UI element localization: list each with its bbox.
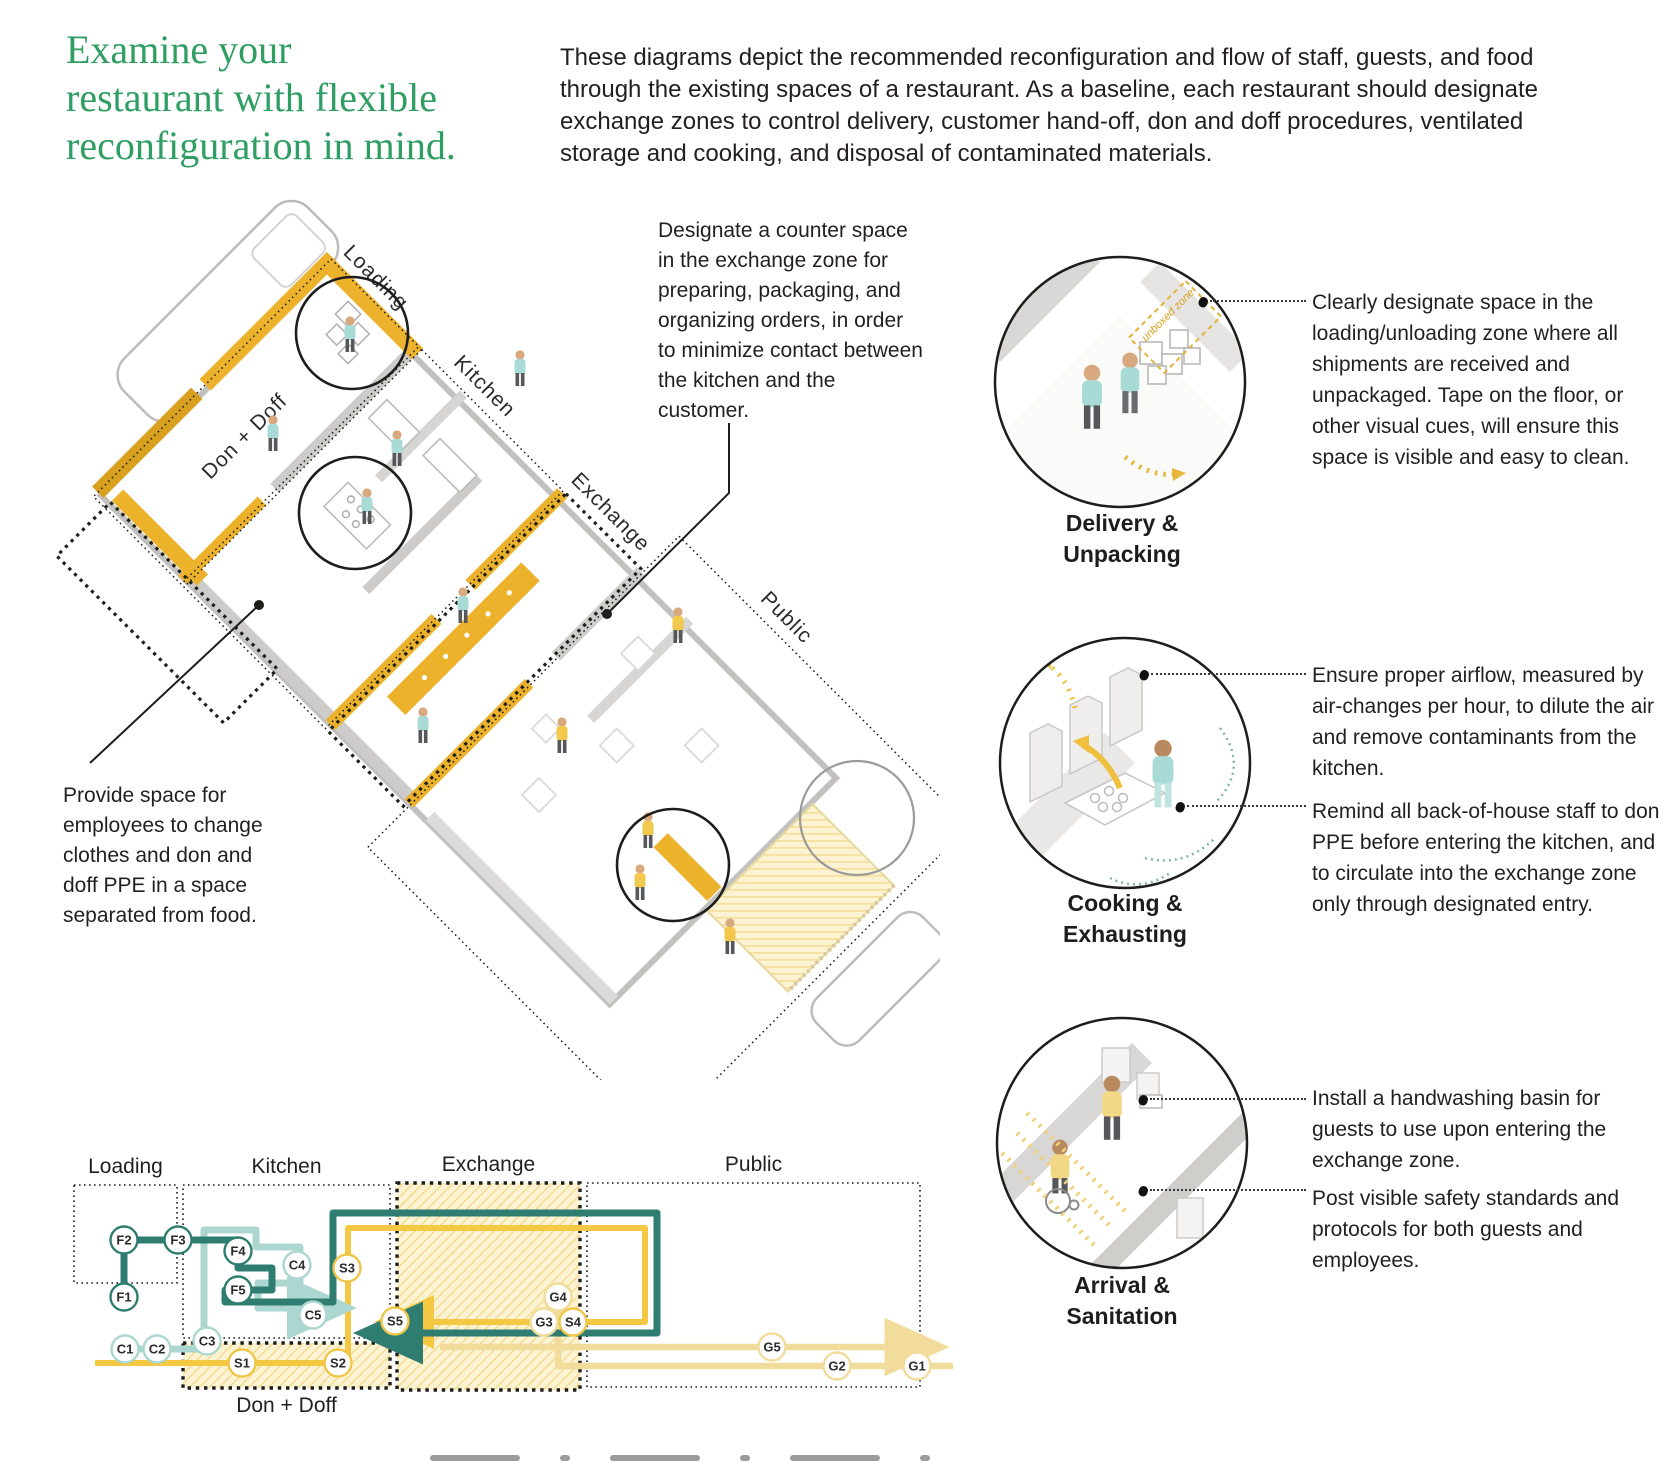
flow-node-S1: S1: [229, 1350, 256, 1377]
leader-line: [1151, 673, 1306, 675]
leader-line: [1187, 805, 1306, 807]
leader-dot: [1199, 297, 1208, 306]
ppe-callout-dot: [254, 600, 264, 610]
flow-node-G4: G4: [545, 1284, 572, 1311]
title-line-2: restaurant with flexible: [66, 74, 566, 122]
flow-zone-label-public: Public: [725, 1153, 782, 1176]
flow-node-F1: F1: [111, 1284, 138, 1311]
svg-text:F2: F2: [116, 1233, 131, 1248]
flow-zone-label-kitchen: Kitchen: [251, 1155, 321, 1178]
svg-text:C2: C2: [149, 1342, 166, 1357]
svg-text:S3: S3: [339, 1261, 355, 1276]
svg-text:G4: G4: [549, 1290, 567, 1305]
flow-node-C3: C3: [194, 1328, 221, 1355]
counter-callout-dot: [602, 609, 612, 619]
svg-text:C1: C1: [117, 1342, 134, 1357]
svg-text:S4: S4: [565, 1315, 582, 1330]
svg-text:F1: F1: [116, 1290, 131, 1305]
axon-label-public: Public: [756, 587, 817, 648]
flow-node-G1: G1: [904, 1353, 931, 1380]
leader-line: [1150, 1098, 1306, 1100]
flow-node-S3: S3: [334, 1255, 361, 1282]
svg-text:F3: F3: [170, 1233, 185, 1248]
flow-node-S5: S5: [382, 1308, 409, 1335]
flow-node-G3: G3: [531, 1309, 558, 1336]
flow-node-S4: S4: [560, 1309, 587, 1336]
title-line-3: reconfiguration in mind.: [66, 122, 566, 170]
cropped-legend-mark: [790, 1455, 880, 1461]
flow-node-S2: S2: [325, 1350, 352, 1377]
cropped-legend-mark: [610, 1455, 700, 1461]
vignette-title-arrival: Arrival & Sanitation: [992, 1270, 1252, 1332]
vignette-title-delivery: Delivery & Unpacking: [992, 508, 1252, 570]
svg-text:S2: S2: [330, 1356, 346, 1371]
svg-text:C3: C3: [199, 1334, 216, 1349]
flow-node-G2: G2: [824, 1353, 851, 1380]
cropped-legend-mark: [560, 1455, 570, 1461]
flow-zone-label-loading: Loading: [88, 1155, 163, 1178]
svg-text:S1: S1: [234, 1356, 250, 1371]
flow-diagram: LoadingKitchenPublicExchangeDon + Doff F…: [40, 1140, 980, 1440]
cropped-legend-mark: [430, 1455, 520, 1461]
flow-node-F2: F2: [111, 1227, 138, 1254]
svg-text:F4: F4: [230, 1244, 246, 1259]
vignette-cooking-exhausting: [980, 618, 1270, 908]
flow-node-C2: C2: [144, 1336, 171, 1363]
title-line-1: Examine your: [66, 26, 566, 74]
flow-zone-label-dondoff: Don + Doff: [236, 1394, 337, 1417]
svg-text:C5: C5: [305, 1308, 322, 1323]
leader-dot: [1140, 670, 1149, 679]
annotation-standards: Post visible safety standards and protoc…: [1312, 1183, 1668, 1276]
svg-text:G2: G2: [828, 1359, 845, 1374]
counter-callout-note: Designate a counter space in the exchang…: [658, 216, 926, 426]
svg-text:G3: G3: [535, 1315, 552, 1330]
flow-node-F3: F3: [165, 1227, 192, 1254]
svg-text:G5: G5: [763, 1340, 780, 1355]
cropped-legend-mark: [740, 1455, 750, 1461]
ppe-callout-note: Provide space for employees to change cl…: [63, 781, 281, 931]
person-figure-yellow: [725, 918, 736, 954]
page-title: Examine your restaurant with flexible re…: [66, 26, 566, 170]
leader-line: [1210, 300, 1306, 302]
leader-dot: [1139, 1186, 1148, 1195]
intro-paragraph: These diagrams depict the recommended re…: [560, 42, 1570, 170]
vignette-arrival-sanitation: [977, 998, 1267, 1288]
annotation-airflow: Ensure proper airflow, measured by air-c…: [1312, 660, 1668, 784]
leader-line: [1150, 1189, 1306, 1191]
flow-node-C4: C4: [284, 1252, 311, 1279]
svg-text:G1: G1: [908, 1359, 925, 1374]
person-figure-teal: [515, 350, 526, 386]
flow-node-C5: C5: [300, 1302, 327, 1329]
annotation-delivery: Clearly designate space in the loading/u…: [1312, 287, 1668, 473]
flow-node-G5: G5: [759, 1334, 786, 1361]
leader-dot: [1139, 1095, 1148, 1104]
svg-text:F5: F5: [230, 1283, 245, 1298]
annotation-handwash: Install a handwashing basin for guests t…: [1312, 1083, 1668, 1176]
cropped-legend-mark: [920, 1455, 930, 1461]
flow-node-F4: F4: [225, 1238, 252, 1265]
svg-text:S5: S5: [387, 1314, 403, 1329]
flow-zone-label-exchange: Exchange: [442, 1153, 535, 1176]
svg-text:C4: C4: [289, 1258, 306, 1273]
flow-node-F5: F5: [225, 1277, 252, 1304]
infographic-page: Examine your restaurant with flexible re…: [0, 0, 1674, 1461]
vignette-title-cooking: Cooking & Exhausting: [995, 888, 1255, 950]
flow-node-C1: C1: [112, 1336, 139, 1363]
vignette-delivery-unpacking: unboxed zone: [975, 237, 1265, 527]
annotation-ppe-staff: Remind all back-of-house staff to don PP…: [1312, 796, 1668, 920]
leader-dot: [1176, 802, 1185, 811]
